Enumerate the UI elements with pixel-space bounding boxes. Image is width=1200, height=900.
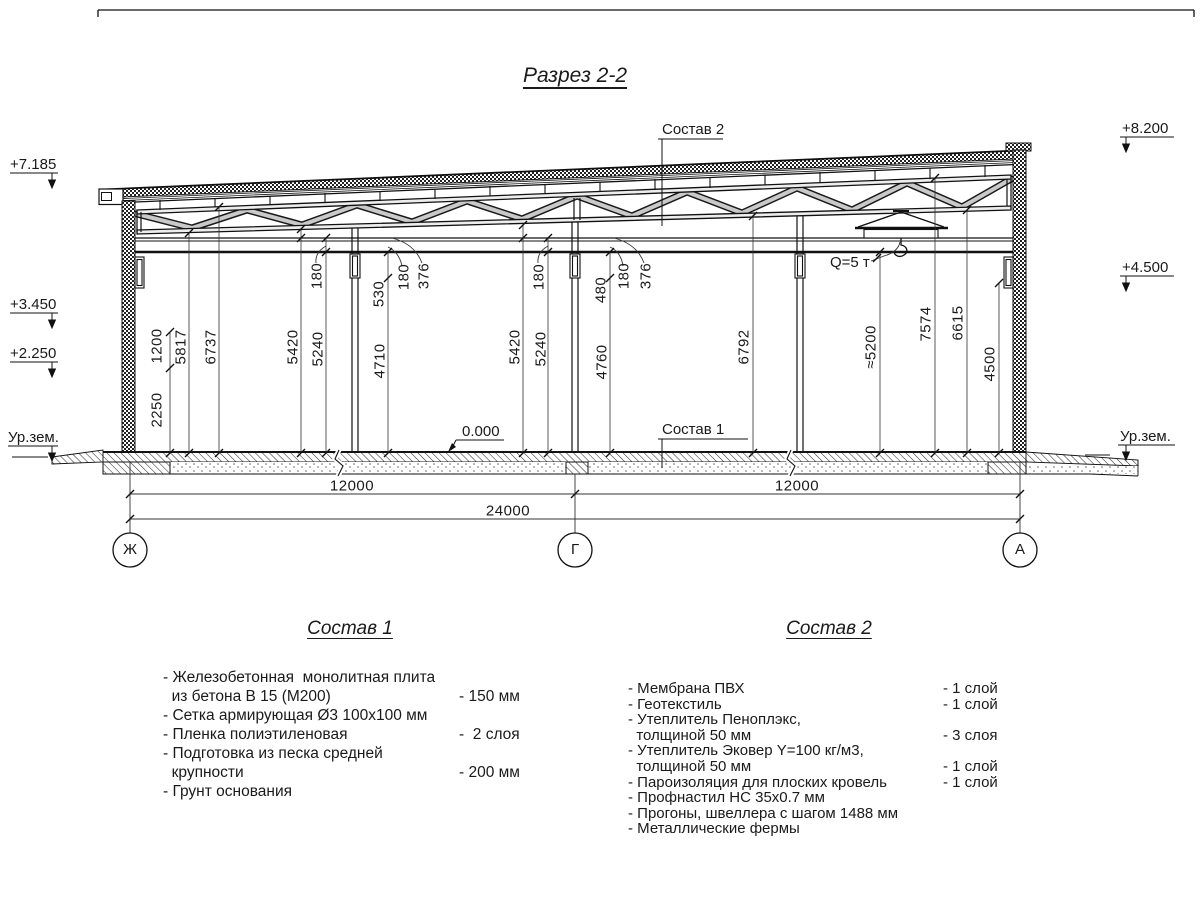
dim-label: 5817 bbox=[173, 330, 190, 365]
dim-label: 5420 bbox=[285, 330, 302, 365]
spec-item-text: - Геотекстиль bbox=[628, 697, 943, 713]
dim-label: 180 bbox=[309, 263, 326, 289]
zero-level-callout: 0.000 bbox=[462, 423, 500, 440]
dim-label: 4710 bbox=[372, 344, 389, 379]
dim-label: 5240 bbox=[533, 332, 550, 367]
spec-item-text: толщиной 50 мм bbox=[628, 759, 943, 775]
elevation-label: +7.185 bbox=[10, 156, 56, 173]
spec-item-text: - Пароизоляция для плоских кровель bbox=[628, 775, 943, 791]
spec-item-text: - Пленка полиэтиленовая bbox=[163, 725, 459, 744]
composition1-callout: Состав 1 bbox=[662, 421, 724, 438]
spec-item-text: - Прогоны, швеллера с шагом 1488 мм bbox=[628, 806, 943, 822]
spec-item-value: - 1 слой bbox=[943, 759, 1013, 775]
axis-label: А bbox=[1015, 541, 1025, 558]
dim-label: 376 bbox=[416, 263, 433, 289]
axis-label: Ж bbox=[123, 541, 137, 558]
dim-label: 5240 bbox=[310, 332, 327, 367]
axis-label: Г bbox=[571, 541, 579, 558]
column-capitals bbox=[135, 254, 1013, 288]
elevation-label: +2.250 bbox=[10, 345, 56, 362]
spec-row: - Геотекстиль- 1 слой bbox=[628, 697, 1028, 713]
dim-label: 6615 bbox=[950, 306, 967, 341]
spec-row: - Прогоны, швеллера с шагом 1488 мм bbox=[628, 806, 1028, 822]
spec-block-composition1: Состав 1 - Железобетонная монолитная пли… bbox=[163, 668, 563, 801]
right-wall bbox=[1013, 150, 1026, 462]
span-dim-label: 12000 bbox=[775, 478, 819, 495]
dim-label: 480 bbox=[593, 277, 610, 303]
spec-row: - Металлические фермы bbox=[628, 821, 1028, 837]
dim-label: 180 bbox=[616, 263, 633, 289]
dim-label: 7574 bbox=[918, 307, 935, 342]
ground-level-label: Ур.зем. bbox=[8, 429, 59, 446]
dim-label: 4500 bbox=[982, 347, 999, 382]
spec-item-text: - Грунт основания bbox=[163, 782, 459, 801]
spec-item-value bbox=[459, 706, 549, 725]
dim-label: 6792 bbox=[736, 330, 753, 365]
dim-label: 5420 bbox=[507, 330, 524, 365]
spec-item-text: - Утеплитель Пеноплэкс, bbox=[628, 712, 943, 728]
spec-item-value bbox=[459, 668, 549, 687]
spec-item-value: - 150 мм bbox=[459, 687, 549, 706]
zero-level-arrowhead bbox=[448, 443, 456, 452]
elevation-label: +3.450 bbox=[10, 296, 56, 313]
spec-row: - Утеплитель Пеноплэкс, bbox=[628, 712, 1028, 728]
dim-label: 1200 bbox=[149, 329, 166, 364]
spec-item-text: - Железобетонная монолитная плита bbox=[163, 668, 459, 687]
dim-label: 180 bbox=[531, 264, 548, 290]
spec-item-value bbox=[459, 744, 549, 763]
floor-slab bbox=[103, 452, 1138, 476]
section-drawing-page: Разрез 2-2 +7.185 +3.450 +2.250 Ур.зем. … bbox=[0, 0, 1200, 900]
spec-row: - Утеплитель Эковер Y=100 кг/м3, bbox=[628, 743, 1028, 759]
spec-row: толщиной 50 мм- 3 слоя bbox=[628, 728, 1028, 744]
spec-item-text: крупности bbox=[163, 763, 459, 782]
spec-row: - Железобетонная монолитная плита bbox=[163, 668, 563, 687]
spec-item-value bbox=[459, 782, 549, 801]
left-wall bbox=[122, 201, 135, 462]
spec-row: крупности- 200 мм bbox=[163, 763, 563, 782]
spec-item-value bbox=[943, 821, 1013, 837]
spec-item-value bbox=[943, 806, 1013, 822]
spec-item-value: - 1 слой bbox=[943, 681, 1013, 697]
crane-capacity-label: Q=5 т bbox=[830, 254, 870, 271]
ground-level-label: Ур.зем. bbox=[1120, 428, 1171, 445]
spec-row: - Грунт основания bbox=[163, 782, 563, 801]
drawing-title: Разрез 2-2 bbox=[455, 64, 695, 88]
spec-item-text: - Металлические фермы bbox=[628, 821, 943, 837]
spec-block-composition2: Состав 2 - Мембрана ПВХ- 1 слой - Геотек… bbox=[628, 681, 1028, 837]
spec-row: - Пароизоляция для плоских кровель- 1 сл… bbox=[628, 775, 1028, 791]
spec-item-value: - 1 слой bbox=[943, 697, 1013, 713]
spec-item-text: - Мембрана ПВХ bbox=[628, 681, 943, 697]
spec-row: толщиной 50 мм- 1 слой bbox=[628, 759, 1028, 775]
spec-item-text: - Профнастил НС 35х0.7 мм bbox=[628, 790, 943, 806]
span-dim-label: 12000 bbox=[330, 478, 374, 495]
spec-row: - Мембрана ПВХ- 1 слой bbox=[628, 681, 1028, 697]
dim-label: ≈5200 bbox=[863, 325, 880, 369]
roof-left-end-cap bbox=[99, 189, 123, 205]
spec-item-text: - Подготовка из песка средней bbox=[163, 744, 459, 763]
sheet-frame bbox=[98, 10, 1194, 17]
spec-item-text: - Сетка армирующая Ø3 100х100 мм bbox=[163, 706, 459, 725]
spec-item-value: - 2 слоя bbox=[459, 725, 549, 744]
composition2-callout: Состав 2 bbox=[662, 121, 724, 138]
spec-item-value: - 200 мм bbox=[459, 763, 549, 782]
spec-item-text: из бетона В 15 (М200) bbox=[163, 687, 459, 706]
spec-item-value bbox=[943, 712, 1013, 728]
spec-title: Состав 2 bbox=[786, 618, 872, 640]
spec-item-value bbox=[943, 743, 1013, 759]
spec-item-value bbox=[943, 790, 1013, 806]
dim-label: 376 bbox=[638, 263, 655, 289]
spec-row: - Подготовка из песка средней bbox=[163, 744, 563, 763]
spec-item-text: - Утеплитель Эковер Y=100 кг/м3, bbox=[628, 743, 943, 759]
spec-item-value: - 3 слоя bbox=[943, 728, 1013, 744]
dim-label: 4760 bbox=[594, 345, 611, 380]
total-dim-label: 24000 bbox=[486, 503, 530, 520]
spec-row: - Сетка армирующая Ø3 100х100 мм bbox=[163, 706, 563, 725]
spec-row: - Пленка полиэтиленовая- 2 слоя bbox=[163, 725, 563, 744]
crane-hoist bbox=[855, 211, 948, 256]
dim-label: 530 bbox=[371, 281, 388, 307]
spec-row: - Профнастил НС 35х0.7 мм bbox=[628, 790, 1028, 806]
dim-label: 2250 bbox=[149, 393, 166, 428]
spec-item-text: толщиной 50 мм bbox=[628, 728, 943, 744]
dim-label: 6737 bbox=[203, 330, 220, 365]
elevation-label: +4.500 bbox=[1122, 259, 1168, 276]
elevation-label: +8.200 bbox=[1122, 120, 1168, 137]
spec-row: из бетона В 15 (М200)- 150 мм bbox=[163, 687, 563, 706]
dim-label: 180 bbox=[396, 264, 413, 290]
spec-title: Состав 1 bbox=[307, 618, 393, 640]
spec-item-value: - 1 слой bbox=[943, 775, 1013, 791]
